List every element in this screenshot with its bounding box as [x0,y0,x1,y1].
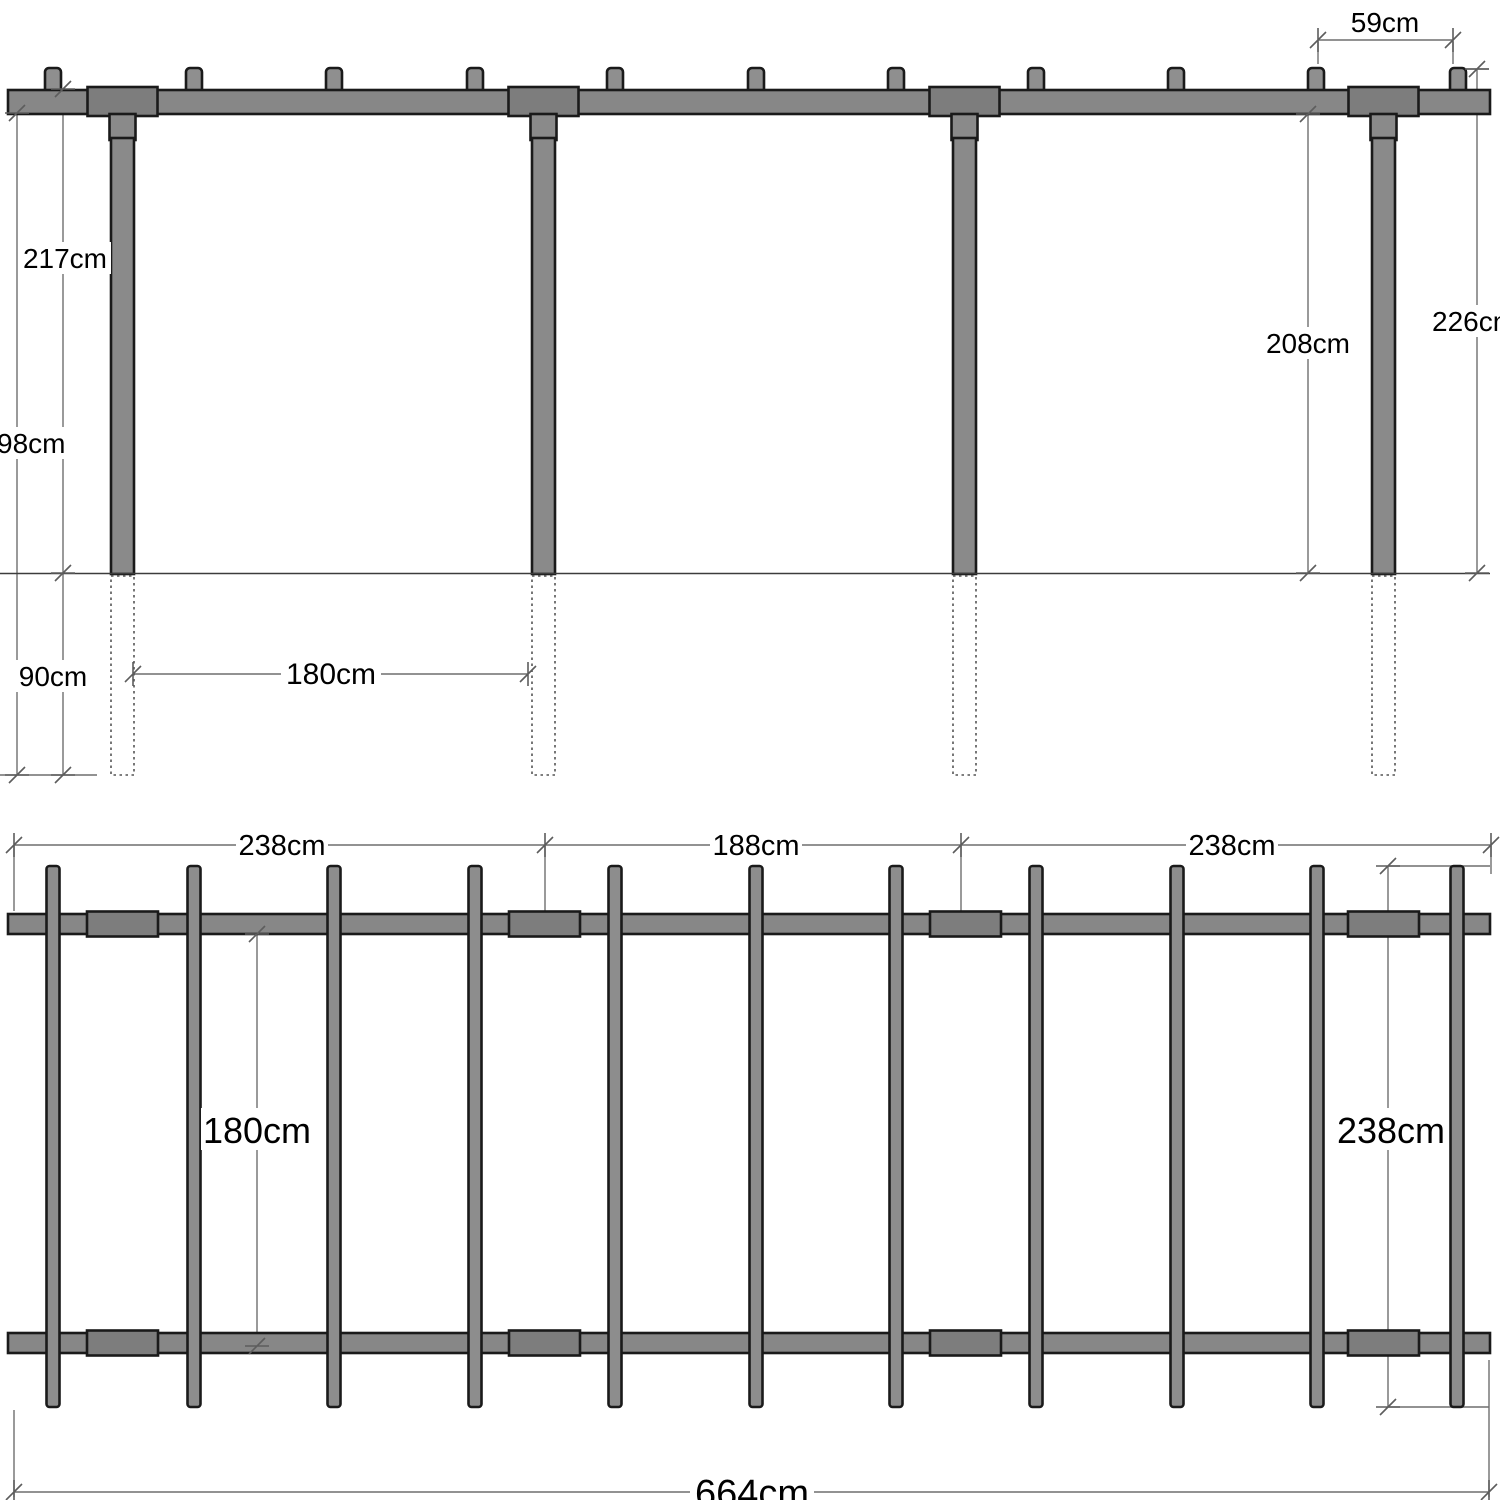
dim-label-208cm: 208cm [1266,328,1350,359]
rafter [1451,866,1464,1407]
dim-line-59cm [1318,40,1453,64]
post [532,138,555,574]
plan-joint-block [509,1331,580,1356]
dim-label-238cm-right: 238cm [1188,830,1275,862]
plan-joint-block [87,912,158,937]
dim-label-180cm-front: 180cm [286,658,376,691]
post [1372,138,1395,574]
dim-label-226cm: 226cm [1432,306,1500,337]
post-assembly-2 [509,87,579,574]
t-connector-neck [1371,114,1397,140]
pergola-technical-drawing: 59cm 217cm 98cm 90cm 208cm 226cm 180cm 2… [0,0,1500,1500]
t-connector-block [1349,87,1419,116]
post-assembly-3 [930,87,1000,574]
rafter [1030,866,1043,1407]
t-connector-block [509,87,579,116]
dim-tick [1481,1480,1497,1500]
rafter [890,866,903,1407]
rafter [328,866,341,1407]
buried-post-outline [1372,576,1395,775]
plan-joint-block [930,1331,1001,1356]
plan-joint-block [1348,912,1419,937]
dimension-lines-layer [0,40,1491,1497]
dim-label-238cm-left: 238cm [238,830,325,862]
dim-label-98cm: 98cm [0,428,65,459]
dim-label-217cm: 217cm [23,243,107,274]
dim-label-90cm: 90cm [19,661,87,692]
buried-post-outline [953,576,976,775]
rafter [750,866,763,1407]
rafter [47,866,60,1407]
dim-label-59cm: 59cm [1351,7,1419,38]
post-assembly-1 [88,87,158,574]
plan-joint-block [509,912,580,937]
dim-tick [6,1480,22,1500]
post-assembly-4 [1349,87,1419,574]
dim-label-180cm-plan: 180cm [203,1110,311,1151]
rafter [609,866,622,1407]
t-connector-neck [110,114,136,140]
dim-label-664cm: 664cm [695,1473,809,1500]
plan-joint-block [87,1331,158,1356]
main-beam [8,90,1490,114]
plan-joint-block [930,912,1001,937]
t-connector-neck [531,114,557,140]
post [953,138,976,574]
t-connector-block [88,87,158,116]
front-elevation-view [0,68,1490,775]
rafter [469,866,482,1407]
t-connector-neck [952,114,978,140]
buried-post-outline [532,576,555,775]
rafter [1171,866,1184,1407]
rafter [1311,866,1324,1407]
plan-joint-block [1348,1331,1419,1356]
rafter [188,866,201,1407]
dim-label-188cm: 188cm [712,830,799,862]
post [111,138,134,574]
dim-label-238cm-plan: 238cm [1337,1110,1445,1151]
t-connector-block [930,87,1000,116]
